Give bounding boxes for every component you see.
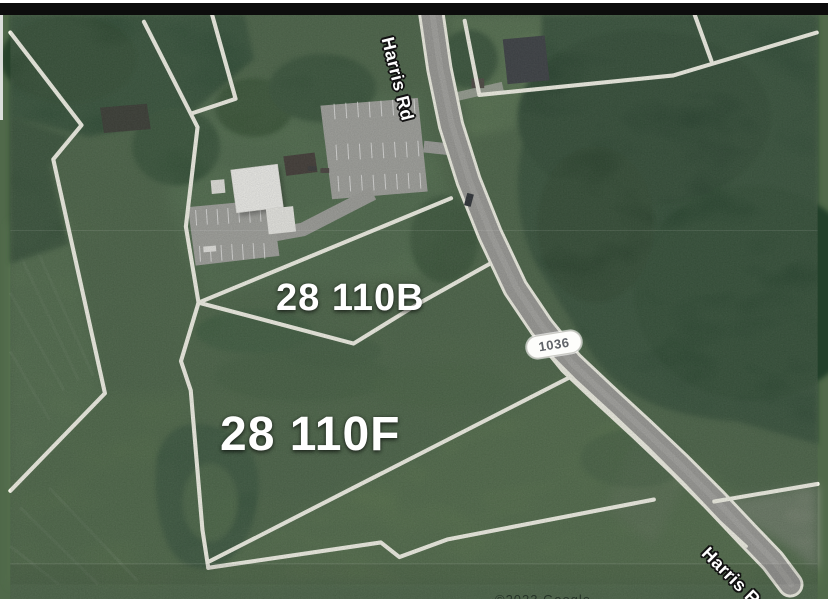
map-attribution: ©2023 Google: [495, 592, 591, 599]
grain-light: [10, 15, 817, 599]
left-edge-sliver: [0, 15, 3, 120]
aerial-imagery: [0, 15, 828, 599]
screenshot-root: Harris Rd 1036 28 110B 28 110F Harris Rd…: [0, 0, 828, 599]
aerial-map[interactable]: Harris Rd 1036 28 110B 28 110F Harris Rd…: [0, 15, 828, 599]
top-border-bar: [0, 3, 828, 15]
route-marker-text: 1036: [538, 335, 571, 355]
